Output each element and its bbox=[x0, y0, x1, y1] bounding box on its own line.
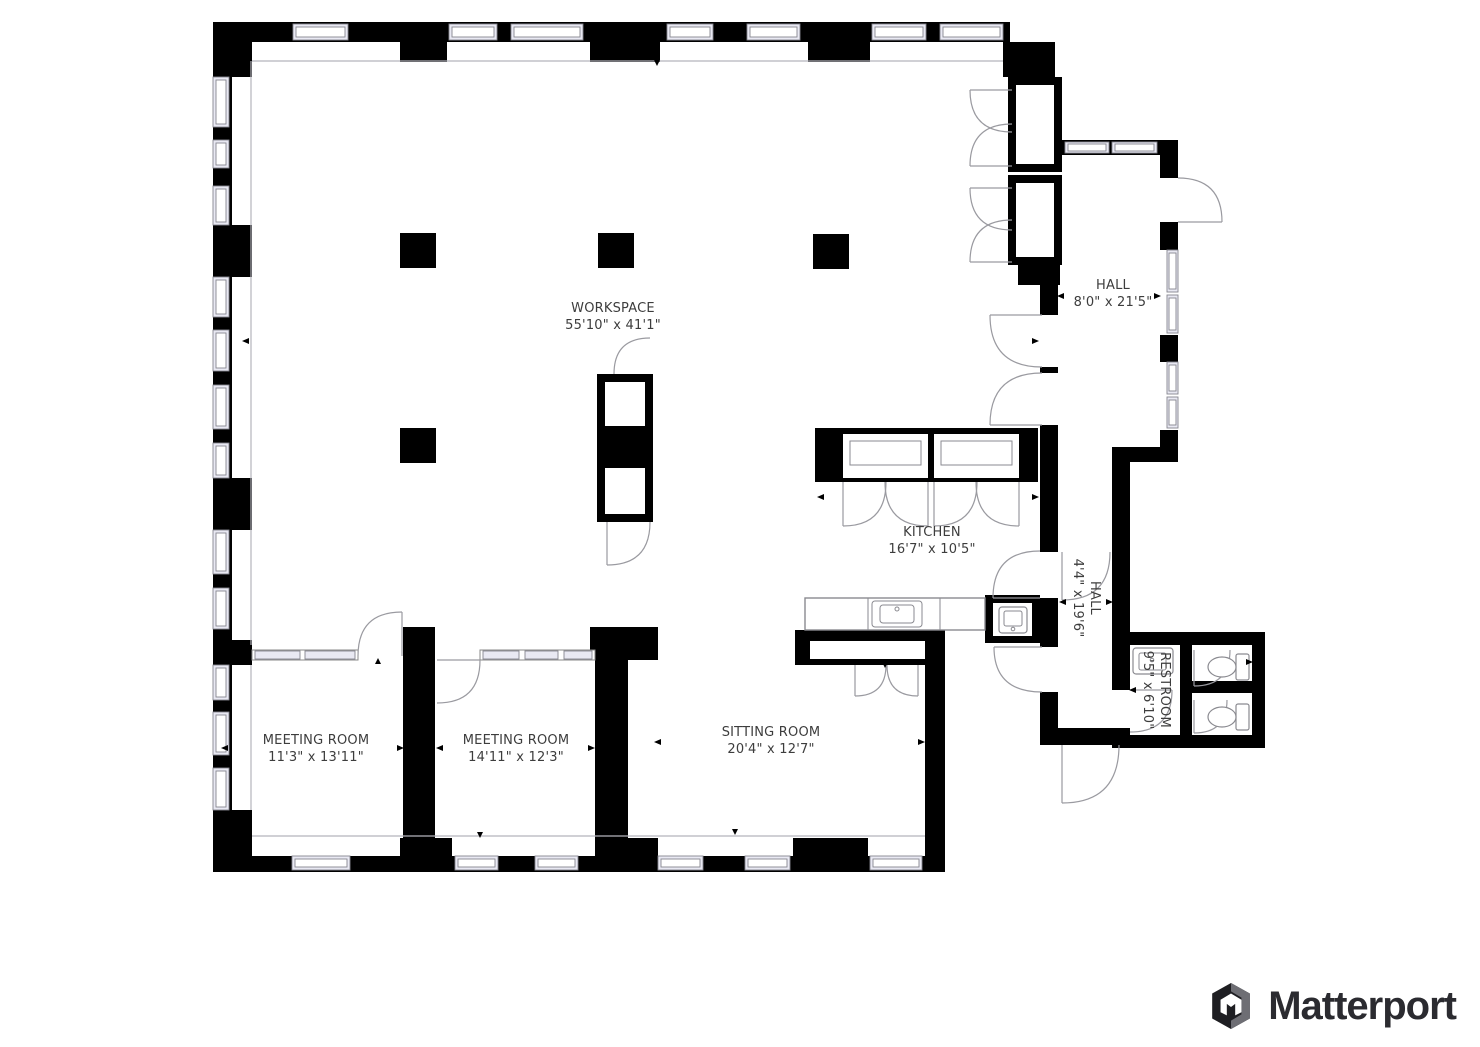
floorplan-page: { "rooms": [ {"name": "WORKSPACE", "dims… bbox=[0, 0, 1480, 1047]
room-name: MEETING ROOM bbox=[263, 733, 369, 750]
room-dims: 16'7" x 10'5" bbox=[888, 542, 975, 559]
room-name: MEETING ROOM bbox=[463, 733, 569, 750]
room-name: KITCHEN bbox=[888, 525, 975, 542]
room-dims: 9'5" x 6'10" bbox=[1138, 651, 1155, 730]
matterport-icon bbox=[1208, 983, 1254, 1029]
room-dims: 20'4" x 12'7" bbox=[722, 742, 821, 759]
room-label-kitchen: KITCHEN 16'7" x 10'5" bbox=[888, 525, 975, 559]
room-label-meeting-room-1: MEETING ROOM 11'3" x 13'11" bbox=[263, 733, 369, 767]
room-name: HALL bbox=[1085, 559, 1102, 638]
room-dims: 4'4" x 19'6" bbox=[1068, 559, 1085, 638]
matterport-logo: Matterport bbox=[1208, 983, 1456, 1029]
room-dims: 8'0" x 21'5" bbox=[1074, 295, 1153, 312]
floorplan-svg bbox=[0, 0, 1480, 1047]
room-label-meeting-room-2: MEETING ROOM 14'11" x 12'3" bbox=[463, 733, 569, 767]
room-label-sitting-room: SITTING ROOM 20'4" x 12'7" bbox=[722, 725, 821, 759]
room-label-hall-corridor: HALL 4'4" x 19'6" bbox=[1068, 559, 1102, 638]
room-name: WORKSPACE bbox=[565, 301, 661, 318]
room-dims: 55'10" x 41'1" bbox=[565, 318, 661, 335]
room-label-hall: HALL 8'0" x 21'5" bbox=[1074, 278, 1153, 312]
room-label-restroom: RESTROOM 9'5" x 6'10" bbox=[1138, 651, 1172, 730]
room-label-workspace: WORKSPACE 55'10" x 41'1" bbox=[565, 301, 661, 335]
room-name: RESTROOM bbox=[1155, 651, 1172, 730]
room-dims: 11'3" x 13'11" bbox=[263, 750, 369, 767]
doors bbox=[358, 90, 1230, 803]
room-name: HALL bbox=[1074, 278, 1153, 295]
brand-name: Matterport bbox=[1268, 984, 1456, 1029]
room-dims: 14'11" x 12'3" bbox=[463, 750, 569, 767]
dimension-ticks bbox=[221, 60, 1253, 838]
room-name: SITTING ROOM bbox=[722, 725, 821, 742]
